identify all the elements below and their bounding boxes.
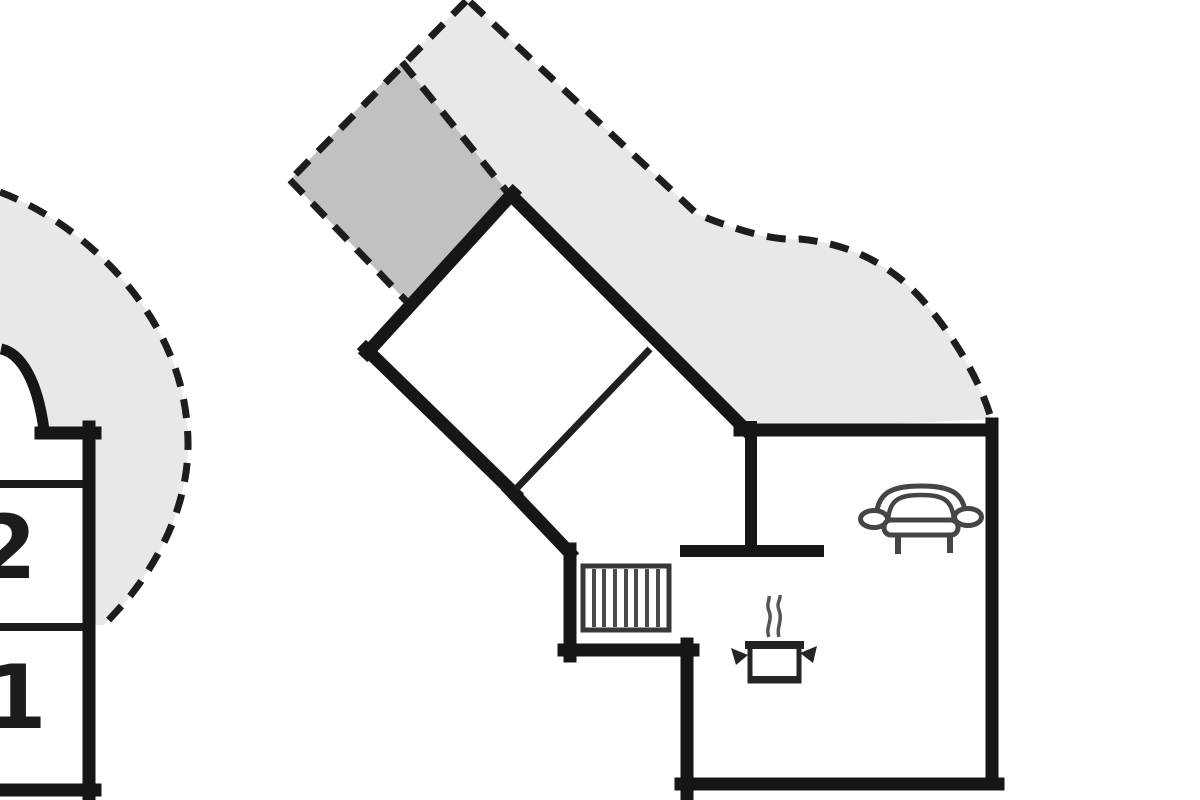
steam-line: [778, 595, 780, 637]
floor-plan-page: 2 1: [0, 0, 1200, 800]
sofa-icon: [861, 486, 982, 554]
steam-line: [768, 596, 770, 637]
cooking-pot-icon: [731, 595, 817, 681]
sofa-seat: [884, 520, 958, 535]
room-divider-line: [516, 349, 650, 489]
staircase-icon: [583, 566, 669, 630]
floor-plan-canvas: 2 1: [0, 0, 1200, 800]
room-2-label: 2: [0, 496, 37, 599]
wall-diagonal-lower: [510, 490, 570, 553]
pot-body: [750, 644, 799, 681]
pot-handle-left: [731, 648, 748, 665]
wall-diamond-lower-left: [366, 349, 515, 494]
room-1-label: 1: [0, 646, 47, 749]
